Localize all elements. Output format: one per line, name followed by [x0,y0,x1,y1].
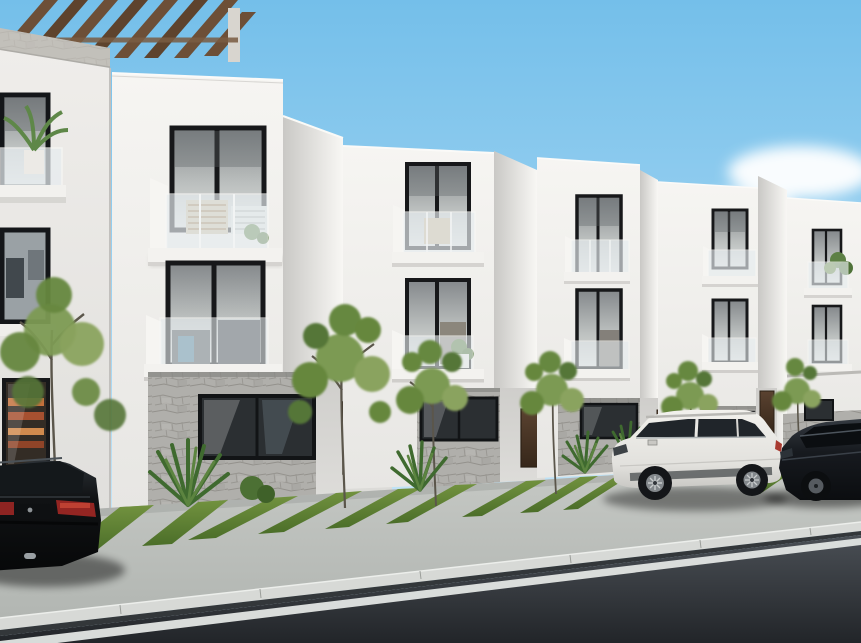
pergola-post [228,8,240,62]
license-plate [20,504,50,519]
wheel [801,471,831,501]
scene-svg: Photorealistic 3D exterior rendering of … [0,0,861,643]
architectural-render: Photorealistic 3D exterior rendering of … [0,0,861,643]
wheel [736,464,768,496]
stone-cladding [148,372,316,506]
balcony [702,246,758,287]
balcony [564,236,630,284]
balcony [702,334,758,373]
balcony [392,205,484,267]
taillight [0,502,14,515]
wheel [638,466,672,500]
balcony [144,315,282,381]
mirror [648,440,657,445]
exhaust-tip [24,553,36,559]
townhouse-unit-b [343,146,545,489]
